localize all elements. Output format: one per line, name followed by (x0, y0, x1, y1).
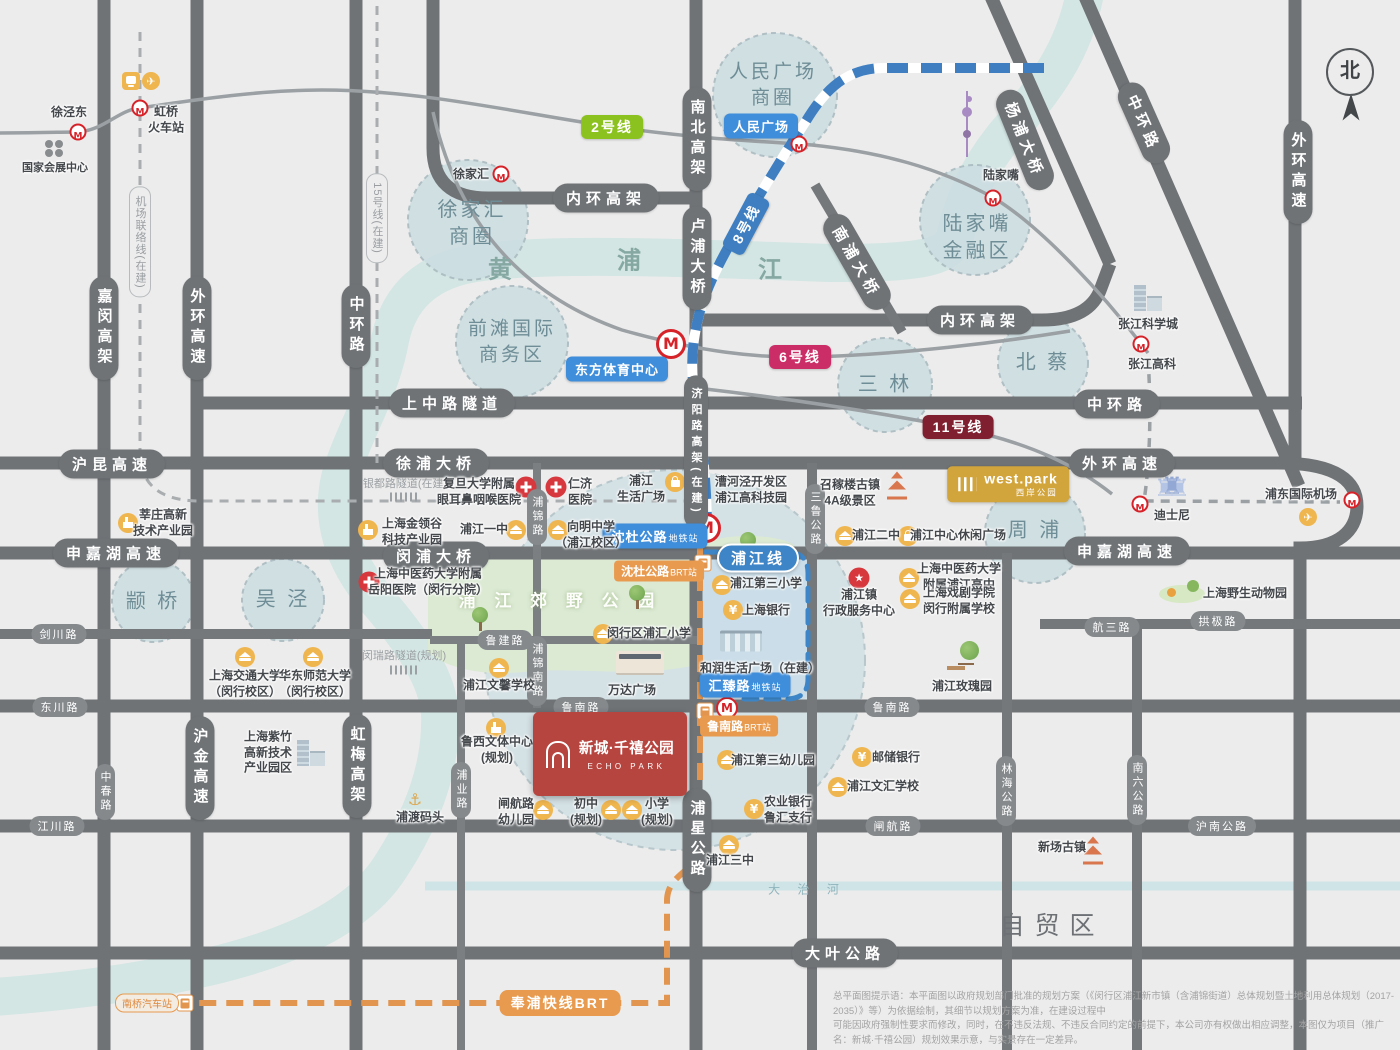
district-label: 前滩国际商务区 (468, 316, 556, 367)
poi-label: 华东师范大学（闵行校区） (279, 668, 351, 699)
district-label: 吴 泾 (256, 587, 311, 614)
poi-label: 浦江镇行政服务中心 (823, 587, 895, 618)
metro-icon (70, 124, 87, 141)
road-pill: 徐浦大桥 (383, 449, 489, 478)
factory-icon (358, 520, 378, 540)
road-pill: 闸航路 (866, 816, 921, 836)
compass-label: 北 (1328, 50, 1372, 92)
train-icon (122, 72, 140, 90)
pujiang-line-label: 浦江线 (717, 544, 799, 573)
road-pill: 东川路 (33, 697, 88, 717)
poi-label: 上海金领谷科技产业园 (382, 516, 442, 547)
poi-label: 上海紫竹高新技术产业园区 (244, 730, 292, 777)
school-icon (719, 835, 739, 855)
poi-label: 张江高科 (1128, 357, 1176, 373)
poi-label: 仁济医院 (568, 476, 592, 507)
road-pill: 南六公路 (1127, 755, 1147, 825)
poi-label: 初中(规划) (570, 796, 602, 827)
school-icon (828, 777, 848, 797)
poi-label: 上海野生动物园 (1203, 586, 1287, 602)
mallw-icon (616, 651, 664, 675)
metro-lg-icon (656, 329, 686, 359)
bank-icon (852, 747, 872, 767)
poi-label: 召稼楼古镇4A级景区 (820, 477, 880, 508)
river-label: 黄 (488, 250, 512, 285)
brt-station-label: 沈杜公路BRT站 (614, 561, 704, 582)
poi-label: 上海银行 (742, 603, 790, 619)
road-pill: 大叶公路 (792, 939, 898, 968)
poi-label: 和润生活广场（在建） (700, 661, 820, 677)
school-icon (506, 520, 526, 540)
poi-label: 浦江玫瑰园 (932, 679, 992, 695)
bank-icon (744, 799, 764, 819)
school-icon (303, 647, 323, 667)
road-pill: 外环高速 (183, 276, 212, 380)
anchor-icon (405, 790, 425, 810)
bus-icon (177, 995, 194, 1012)
road-pill: 鲁建路 (478, 630, 533, 650)
transit-construction-pill: 机场联络线(在建) (129, 186, 151, 297)
metro-icon (493, 166, 510, 183)
road-pill: 中环路 (1074, 390, 1160, 419)
poi-label: 张江科学城 (1118, 317, 1178, 333)
road-pill: 申嘉湖高速 (53, 539, 179, 568)
disclaimer-line2: 可能因政府强制性要求而修改，同时，在不违反法规、不违反合同约定的前提下，本公司亦… (833, 1019, 1398, 1048)
district-label: 徐家汇商圈 (438, 197, 507, 251)
road-pill: 内环高架 (927, 306, 1033, 335)
metro-line-label: 2号线 (581, 115, 643, 139)
plane-icon (142, 72, 160, 90)
poi-label: 虹桥火车站 (148, 104, 184, 135)
poi-label: 小学(规划) (641, 796, 673, 827)
wild-icon (1159, 585, 1205, 603)
west-park-bars-icon (958, 477, 976, 491)
metro-line-label: 11号线 (923, 415, 994, 439)
road-pill: 沪昆高速 (59, 450, 165, 479)
poi-label: 浦江生活广场 (617, 473, 665, 504)
brt-line-label: 奉浦快线BRT (500, 990, 621, 1016)
school-icon (489, 658, 509, 678)
road-pill: 内环高架 (553, 184, 659, 213)
school-icon (622, 800, 642, 820)
road-pill: 卢浦大桥 (683, 206, 712, 310)
road-pill: 浦星公路 (683, 788, 712, 892)
road-pill: 济阳路高架(在建) (684, 375, 708, 528)
west-park-name-zh: 西岸公园 (984, 488, 1058, 497)
poi-label: 浦江第三幼儿园 (731, 753, 815, 769)
poi-label: 浦江三中 (706, 853, 754, 869)
station-label: 人民广场 (724, 114, 798, 139)
road-pill: 林海公路 (996, 756, 1016, 826)
metro-icon (985, 190, 1002, 207)
poi-label: 闵行区浦汇小学 (607, 626, 691, 642)
poi-label: 复旦大学附属眼耳鼻咽喉医院 (437, 476, 521, 507)
compass: 北 (1326, 48, 1374, 96)
metro-icon (1344, 492, 1361, 509)
road-pill: 浦业路 (451, 762, 471, 818)
tree-icon (627, 585, 647, 611)
road-pill: 外环高速 (1069, 449, 1175, 478)
road-pill: 申嘉湖高速 (1064, 537, 1190, 566)
pagoda-icon (887, 471, 907, 500)
poi-label: 上海交通大学（闵行校区） (209, 668, 281, 699)
district-label: 周 浦 (1008, 518, 1063, 545)
road-pill: 航三路 (1085, 617, 1140, 637)
road-pill: 拱极路 (1191, 611, 1246, 631)
poi-label: 向明中学（浦江校区） (555, 519, 627, 550)
road-pill: 剑川路 (32, 624, 87, 644)
tunnel-label: 闵瑞路隧道(规划) (362, 647, 446, 663)
disclaimer-line1: 总平面图提示语：本平面图以政府规划部门批准的规划方案（《闵行区浦江新市镇（含浦锦… (833, 990, 1398, 1019)
poi-label: 万达广场 (608, 683, 656, 699)
poi-label: 邮储银行 (872, 750, 920, 766)
build2-icon (292, 738, 328, 766)
poi-label: 浦渡码头 (396, 810, 444, 826)
road-pill: 南北高架 (683, 87, 712, 191)
project-block: 新城·千禧公园 ECHO PARK (533, 712, 687, 796)
school-icon (601, 800, 621, 820)
poi-label: 陆家嘴 (983, 168, 1019, 184)
school-icon (235, 647, 255, 667)
poi-label: 浦江第三小学 (730, 576, 802, 592)
hatch-icon (390, 493, 418, 502)
river-label: 大 治 河 (768, 881, 846, 898)
district-label: 北 蔡 (1016, 350, 1071, 377)
road-pill: 中环路 (342, 284, 371, 368)
tunnel-label: 银都路隧道(在建) (363, 475, 447, 491)
clover-icon (44, 140, 64, 160)
metro-icon (1133, 336, 1150, 353)
project-name: 新城·千禧公园 (579, 737, 674, 758)
district-label: 三 林 (858, 372, 913, 399)
poi-label: 徐家汇 (453, 167, 489, 183)
metro-icon (1132, 496, 1149, 513)
cross-icon (546, 477, 567, 498)
poi-label: 国家会展中心 (22, 161, 88, 175)
poi-label: 上海戏剧学院闵行附属学校 (923, 585, 995, 616)
build2-icon (1129, 283, 1165, 311)
plane-icon (1299, 508, 1317, 526)
road-pill: 沪南公路 (1188, 816, 1256, 836)
poi-label: 浦江一中 (460, 522, 508, 538)
poi-label: 漕河泾开发区浦江高科技园 (715, 474, 787, 505)
road-pill: 鲁南路 (865, 697, 920, 717)
star-icon (849, 568, 870, 589)
west-park-label: west.park 西岸公园 (947, 466, 1069, 502)
poi-label: 浦江二中 (852, 528, 900, 544)
parkb-icon (945, 641, 981, 671)
poi-label: 闸航路幼儿园 (498, 796, 534, 827)
mallh-icon (720, 631, 762, 652)
poi-label: 浦江中心休闲广场 (910, 528, 1006, 544)
road-pill: 江川路 (30, 816, 85, 836)
west-park-name-en: west.park (984, 471, 1058, 485)
metro-icon (132, 100, 149, 117)
poi-label: 上海中医药大学附属岳阳医院（闵行分院） (368, 566, 488, 597)
location-map: 新城·千禧公园 ECHO PARK west.park 西岸公园 北 总平面图提… (0, 0, 1400, 1050)
poi-label: 莘庄高新技术产业园 (133, 507, 193, 538)
road-pill: 沪金高速 (186, 716, 215, 820)
district-label: 人民广场商圈 (729, 59, 817, 110)
road-pill: 中春路 (95, 764, 115, 820)
bus-terminal-label: 南桥汽车站 (115, 994, 179, 1013)
poi-label: 鲁西文体中心(规划) (461, 734, 533, 765)
school-icon (533, 800, 553, 820)
disclaimer: 总平面图提示语：本平面图以政府规划部门批准的规划方案（《闵行区浦江新市镇（含浦锦… (833, 990, 1398, 1049)
poi-label: 徐泾东 (51, 105, 87, 121)
project-name-en: ECHO PARK (579, 762, 674, 771)
poi-label: 新场古镇 (1038, 840, 1086, 856)
road-pill: 嘉闵高架 (90, 276, 119, 380)
poi-label: 浦东国际机场 (1265, 487, 1337, 503)
bank-icon (723, 600, 743, 620)
poi-label: 农业银行鲁汇支行 (764, 794, 812, 825)
poi-label: 浦江文馨学校 (463, 678, 535, 694)
district-label: 陆家嘴金融区 (943, 211, 1012, 265)
pearl-icon (959, 91, 975, 157)
road-pill: 虹梅高架 (343, 714, 372, 818)
river-label: 浦 (617, 241, 641, 276)
transit-construction-pill: 15号线(在建) (366, 173, 388, 263)
area-label: 自贸区 (999, 906, 1104, 942)
road-pill: 上中路隧道 (389, 389, 515, 418)
road-pill: 浦锦路 (527, 489, 547, 545)
station-label: 东方体育中心 (566, 357, 668, 382)
brt-station-label: 鲁南路BRT站 (700, 716, 778, 737)
metro-line-label: 6号线 (769, 345, 831, 369)
poi-label: 迪士尼 (1154, 508, 1190, 524)
project-logo-arch-icon (546, 741, 570, 768)
hatch-icon (390, 666, 418, 675)
road-pill: 外环高速 (1284, 120, 1313, 224)
bag-icon (665, 472, 685, 492)
district-label: 颛 桥 (126, 589, 181, 616)
river-label: 江 (758, 250, 782, 285)
poi-label: 浦江文汇学校 (847, 779, 919, 795)
